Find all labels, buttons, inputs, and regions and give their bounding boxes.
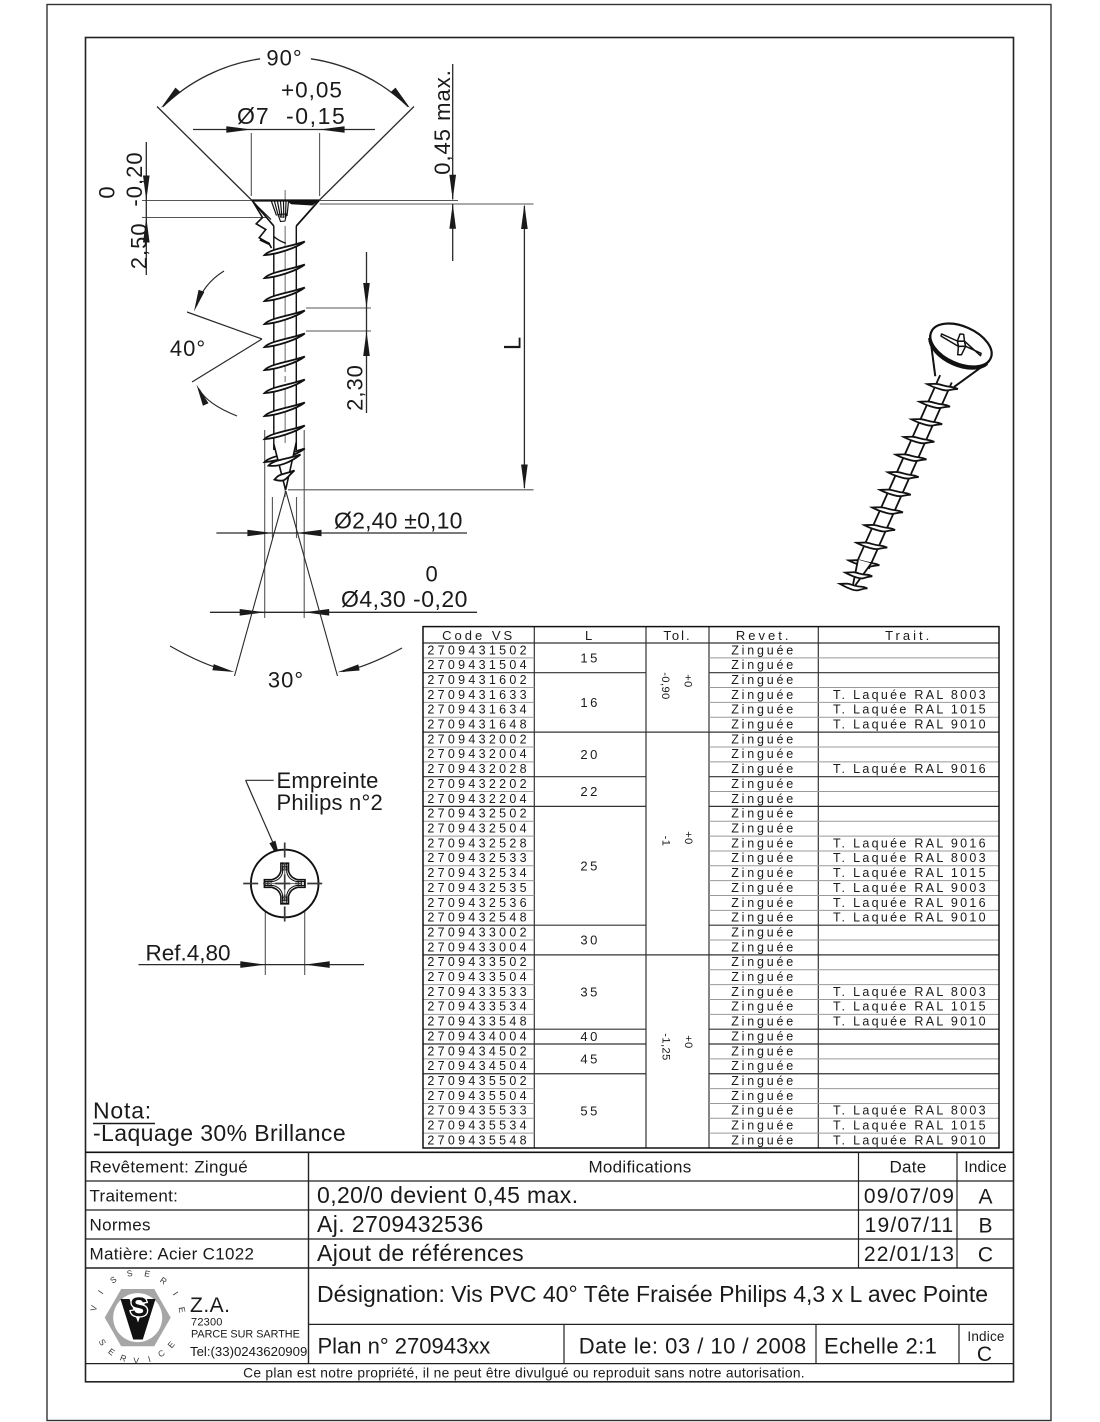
svg-text:40: 40 (580, 1029, 599, 1044)
svg-text:L: L (585, 628, 595, 643)
svg-text:2,50: 2,50 (127, 222, 152, 269)
svg-text:2709434004: 2709434004 (427, 1029, 530, 1043)
svg-text:T. Laquée RAL 1015: T. Laquée RAL 1015 (833, 866, 988, 880)
svg-text:30: 30 (580, 933, 599, 948)
svg-text:Zinguée: Zinguée (731, 970, 796, 984)
svg-text:2709433534: 2709433534 (427, 1000, 530, 1014)
svg-text:Traitement:: Traitement: (90, 1187, 179, 1206)
svg-text:A: A (978, 1186, 992, 1209)
svg-text:2709431502: 2709431502 (427, 643, 530, 657)
svg-text:2709432204: 2709432204 (427, 792, 530, 806)
svg-text:Zinguée: Zinguée (731, 821, 796, 835)
svg-text:Zinguée: Zinguée (731, 732, 796, 746)
svg-text:V: V (133, 1356, 139, 1366)
svg-text:Zinguée: Zinguée (731, 688, 796, 702)
svg-text:Zinguée: Zinguée (731, 896, 796, 910)
svg-text:Zinguée: Zinguée (731, 940, 796, 954)
svg-text:Zinguée: Zinguée (731, 807, 796, 821)
svg-text:2709433504: 2709433504 (427, 970, 530, 984)
svg-text:2709432548: 2709432548 (427, 911, 530, 925)
svg-text:2709432004: 2709432004 (427, 747, 530, 761)
svg-text:Echelle 2:1: Echelle 2:1 (824, 1334, 937, 1359)
svg-text:Zinguée: Zinguée (731, 777, 796, 791)
svg-text:T. Laquée RAL 1015: T. Laquée RAL 1015 (833, 1000, 988, 1014)
svg-text:T. Laquée RAL 9016: T. Laquée RAL 9016 (833, 762, 988, 776)
svg-text:Ø7: Ø7 (237, 103, 270, 129)
svg-text:Revet.: Revet. (736, 628, 792, 643)
svg-text:Zinguée: Zinguée (731, 703, 796, 717)
svg-text:Zinguée: Zinguée (731, 718, 796, 732)
svg-text:Zinguée: Zinguée (731, 1133, 796, 1147)
svg-text:2709435504: 2709435504 (427, 1089, 530, 1103)
svg-text:Ref.4,80: Ref.4,80 (146, 941, 231, 966)
svg-text:B: B (978, 1215, 992, 1238)
svg-text:Z.A.: Z.A. (190, 1294, 231, 1317)
svg-text:-1: -1 (660, 836, 672, 847)
svg-text:Indice: Indice (967, 1329, 1004, 1344)
svg-text:2709433004: 2709433004 (427, 940, 530, 954)
svg-text:20: 20 (580, 747, 599, 762)
svg-text:2709432528: 2709432528 (427, 836, 530, 850)
svg-text:55: 55 (580, 1103, 599, 1118)
svg-text:2709434502: 2709434502 (427, 1044, 530, 1058)
svg-text:0,45 max.: 0,45 max. (430, 69, 455, 175)
svg-text:2709435534: 2709435534 (427, 1119, 530, 1133)
svg-text:Plan n° 270943xx: Plan n° 270943xx (318, 1334, 491, 1359)
svg-text:Zinguée: Zinguée (731, 762, 796, 776)
svg-text:2709432002: 2709432002 (427, 732, 530, 746)
svg-text:2709432028: 2709432028 (427, 762, 530, 776)
svg-text:+0: +0 (682, 831, 694, 845)
svg-text:T. Laquée RAL 9016: T. Laquée RAL 9016 (833, 896, 988, 910)
svg-text:Zinguée: Zinguée (731, 1044, 796, 1058)
svg-text:2709431648: 2709431648 (427, 718, 530, 732)
svg-text:T. Laquée RAL 8003: T. Laquée RAL 8003 (833, 851, 988, 865)
svg-text:Zinguée: Zinguée (731, 866, 796, 880)
svg-text:90°: 90° (266, 46, 302, 71)
svg-text:+0,05: +0,05 (281, 78, 343, 103)
svg-text:Zinguée: Zinguée (731, 851, 796, 865)
svg-text:Zinguée: Zinguée (731, 955, 796, 969)
svg-text:PARCE SUR SARTHE: PARCE SUR SARTHE (191, 1329, 300, 1341)
svg-text:Zinguée: Zinguée (731, 1074, 796, 1088)
svg-text:C: C (978, 1244, 993, 1267)
svg-text:T. Laquée RAL 9010: T. Laquée RAL 9010 (833, 718, 988, 732)
svg-text:2709433502: 2709433502 (427, 955, 530, 969)
svg-text:Revêtement: Zingué: Revêtement: Zingué (90, 1158, 248, 1177)
svg-text:Zinguée: Zinguée (731, 673, 796, 687)
svg-text:15: 15 (580, 650, 599, 665)
svg-text:Date le: 03 / 10 / 2008: Date le: 03 / 10 / 2008 (579, 1334, 807, 1359)
svg-text:Ø4,30 -0,20: Ø4,30 -0,20 (341, 586, 468, 612)
svg-text:Zinguée: Zinguée (731, 1089, 796, 1103)
svg-text:T. Laquée RAL 9010: T. Laquée RAL 9010 (833, 1133, 988, 1147)
svg-text:Zinguée: Zinguée (731, 985, 796, 999)
svg-text:T. Laquée RAL 8003: T. Laquée RAL 8003 (833, 985, 988, 999)
svg-text:Zinguée: Zinguée (731, 1119, 796, 1133)
svg-text:T. Laquée RAL 9016: T. Laquée RAL 9016 (833, 836, 988, 850)
svg-text:T. Laquée RAL 9003: T. Laquée RAL 9003 (833, 881, 988, 895)
svg-text:Ce plan est notre propriété, i: Ce plan est notre propriété, il ne peut … (243, 1366, 805, 1381)
svg-text:2709435533: 2709435533 (427, 1104, 530, 1118)
svg-text:22: 22 (580, 784, 599, 799)
svg-text:-0,20: -0,20 (122, 151, 147, 206)
svg-text:Normes: Normes (90, 1216, 151, 1235)
svg-text:Modifications: Modifications (588, 1158, 691, 1177)
svg-text:25: 25 (580, 858, 599, 873)
svg-text:Zinguée: Zinguée (731, 658, 796, 672)
svg-text:Zinguée: Zinguée (731, 925, 796, 939)
svg-text:T. Laquée RAL 8003: T. Laquée RAL 8003 (833, 688, 988, 702)
svg-text:Trait.: Trait. (885, 628, 932, 643)
svg-text:2709432502: 2709432502 (427, 807, 530, 821)
svg-text:Tel:(33)0243620909: Tel:(33)0243620909 (190, 1344, 307, 1359)
svg-text:T. Laquée RAL 1015: T. Laquée RAL 1015 (833, 1119, 988, 1133)
svg-text:2709431504: 2709431504 (427, 658, 530, 672)
svg-text:Désignation: Vis PVC 40° Tête: Désignation: Vis PVC 40° Tête Fraisée Ph… (317, 1281, 988, 1307)
svg-text:Ø2,40 ±0,10: Ø2,40 ±0,10 (334, 508, 463, 534)
svg-text:Matière: Acier C1022: Matière: Acier C1022 (90, 1245, 255, 1264)
svg-text:2709433533: 2709433533 (427, 985, 530, 999)
svg-text:Zinguée: Zinguée (731, 836, 796, 850)
svg-text:Zinguée: Zinguée (731, 643, 796, 657)
svg-text:T. Laquée RAL 9010: T. Laquée RAL 9010 (833, 1015, 988, 1029)
svg-text:09/07/09: 09/07/09 (864, 1185, 955, 1208)
svg-text:2709435548: 2709435548 (427, 1133, 530, 1147)
svg-text:2709432536: 2709432536 (427, 896, 530, 910)
svg-text:72300: 72300 (191, 1317, 223, 1329)
svg-text:2709431633: 2709431633 (427, 688, 530, 702)
svg-text:0,20/0 devient 0,45 max.: 0,20/0 devient 0,45 max. (317, 1182, 579, 1208)
svg-text:2709435502: 2709435502 (427, 1074, 530, 1088)
svg-text:35: 35 (580, 985, 599, 1000)
svg-text:2709433002: 2709433002 (427, 925, 530, 939)
svg-text:Tol.: Tol. (663, 628, 691, 643)
svg-text:2709431634: 2709431634 (427, 703, 530, 717)
svg-text:0: 0 (95, 185, 120, 198)
svg-text:Date: Date (889, 1158, 926, 1177)
svg-text:Aj. 2709432536: Aj. 2709432536 (317, 1211, 484, 1237)
svg-text:Zinguée: Zinguée (731, 881, 796, 895)
svg-text:Indice: Indice (964, 1159, 1007, 1176)
svg-text:45: 45 (580, 1051, 599, 1066)
svg-text:T. Laquée RAL 9010: T. Laquée RAL 9010 (833, 911, 988, 925)
svg-text:2709432533: 2709432533 (427, 851, 530, 865)
svg-text:S: S (130, 1292, 148, 1322)
svg-text:16: 16 (580, 695, 599, 710)
svg-text:+0: +0 (682, 674, 694, 688)
svg-text:Zinguée: Zinguée (731, 1000, 796, 1014)
svg-text:Ajout de références: Ajout de références (317, 1240, 524, 1266)
svg-text:Code VS: Code VS (442, 628, 515, 643)
svg-text:Zinguée: Zinguée (731, 911, 796, 925)
svg-text:0: 0 (426, 562, 439, 587)
svg-text:2709432202: 2709432202 (427, 777, 530, 791)
svg-text:T. Laquée RAL 8003: T. Laquée RAL 8003 (833, 1104, 988, 1118)
svg-text:Philips n°2: Philips n°2 (277, 790, 383, 815)
svg-text:2709431602: 2709431602 (427, 673, 530, 687)
svg-text:C: C (977, 1343, 992, 1366)
svg-text:2709432504: 2709432504 (427, 821, 530, 835)
svg-text:2709433548: 2709433548 (427, 1015, 530, 1029)
svg-text:-Laquage 30% Brillance: -Laquage 30% Brillance (93, 1120, 346, 1146)
svg-text:Zinguée: Zinguée (731, 747, 796, 761)
svg-text:Zinguée: Zinguée (731, 1015, 796, 1029)
svg-text:L: L (500, 336, 527, 350)
svg-text:T. Laquée RAL 1015: T. Laquée RAL 1015 (833, 703, 988, 717)
svg-text:2709432535: 2709432535 (427, 881, 530, 895)
svg-text:19/07/11: 19/07/11 (865, 1214, 955, 1237)
svg-text:40°: 40° (170, 336, 206, 361)
svg-text:Zinguée: Zinguée (731, 1059, 796, 1073)
svg-text:-1,25: -1,25 (660, 1033, 672, 1061)
svg-text:Zinguée: Zinguée (731, 1104, 796, 1118)
svg-text:-0,90: -0,90 (659, 672, 671, 700)
svg-text:2709432534: 2709432534 (427, 866, 530, 880)
svg-text:+0: +0 (682, 1035, 694, 1049)
svg-text:30°: 30° (268, 668, 304, 693)
svg-text:22/01/13: 22/01/13 (864, 1243, 955, 1266)
svg-text:Zinguée: Zinguée (731, 792, 796, 806)
svg-text:2,30: 2,30 (343, 364, 368, 411)
svg-text:Zinguée: Zinguée (731, 1029, 796, 1043)
svg-text:2709434504: 2709434504 (427, 1059, 530, 1073)
svg-text:-0,15: -0,15 (286, 103, 346, 129)
